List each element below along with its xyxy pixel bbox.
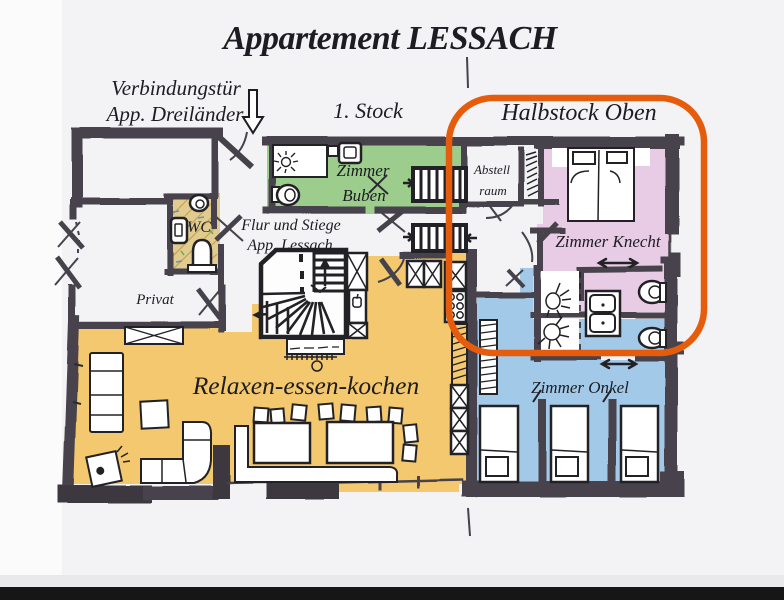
svg-text:Halbstock Oben: Halbstock Oben — [500, 100, 656, 126]
svg-text:Zimmer: Zimmer — [337, 161, 390, 180]
svg-text:1. Stock: 1. Stock — [333, 98, 404, 123]
svg-text:Abstell: Abstell — [473, 162, 510, 177]
svg-text:WC: WC — [187, 219, 211, 236]
svg-text:App. Dreiländer: App. Dreiländer — [105, 102, 245, 126]
svg-text:Verbindungstür: Verbindungstür — [111, 76, 241, 100]
svg-text:raum: raum — [479, 183, 506, 198]
svg-text:Buben: Buben — [342, 186, 385, 205]
svg-text:Zimmer Onkel: Zimmer Onkel — [531, 378, 629, 397]
svg-text:Relaxen-essen-kochen: Relaxen-essen-kochen — [192, 371, 420, 400]
svg-text:App. Lessach: App. Lessach — [246, 237, 332, 254]
svg-text:Privat: Privat — [135, 292, 174, 308]
svg-text:Zimmer Knecht: Zimmer Knecht — [555, 232, 662, 251]
svg-text:Appartement LESSACH: Appartement LESSACH — [221, 20, 558, 57]
svg-text:Flur und Stiege: Flur und Stiege — [240, 217, 341, 234]
